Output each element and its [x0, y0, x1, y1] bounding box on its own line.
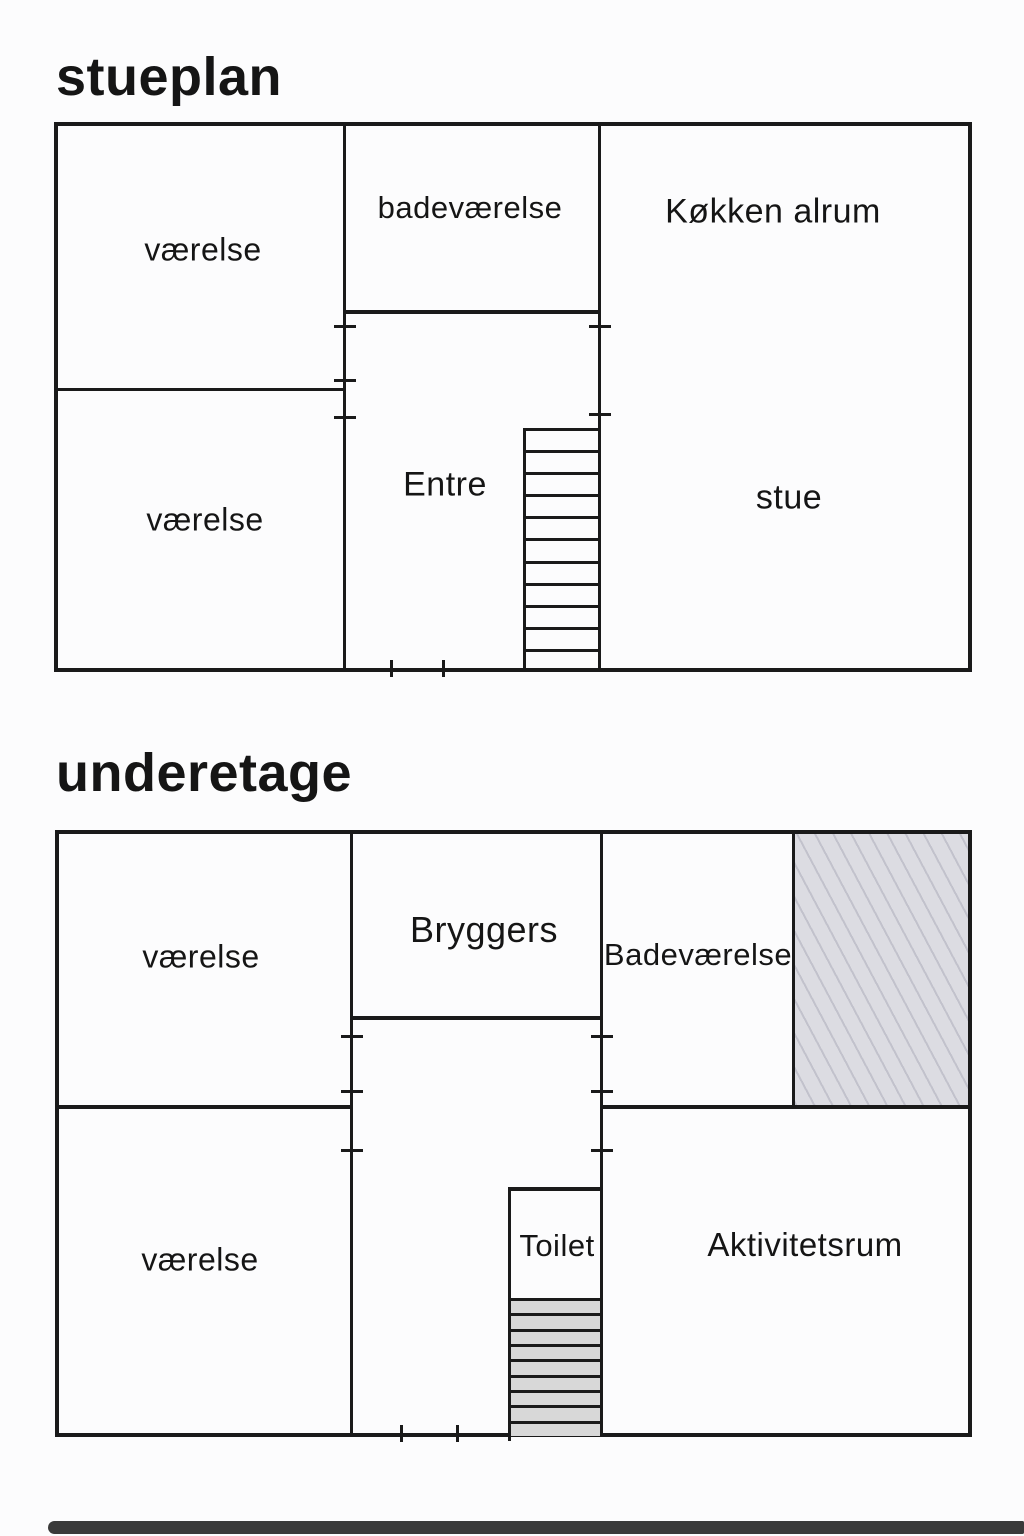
- title-stueplan: stueplan: [56, 50, 282, 104]
- wall-outer-bottom: [54, 668, 972, 672]
- wall-bathroom-bottom: [343, 310, 601, 314]
- stair-tread: [526, 475, 601, 497]
- scan-edge-artifact: [48, 1521, 1024, 1534]
- stair-tread: [511, 1332, 600, 1347]
- stair-tread: [526, 541, 601, 563]
- stair-tread: [511, 1378, 600, 1393]
- stair-tread: [511, 1408, 600, 1423]
- wall-outer-right: [968, 122, 972, 672]
- door-opening-tick: [341, 1035, 363, 1038]
- wall-rooms-corridor: [350, 830, 353, 1437]
- wall-room-divider: [55, 1105, 353, 1109]
- door-opening-tick: [589, 325, 611, 328]
- wall-room-divider: [54, 388, 346, 391]
- wall-outer-right: [968, 830, 972, 1437]
- room-label-entre: Entre: [403, 466, 487, 505]
- door-opening-tick: [334, 325, 356, 328]
- stair-tread: [526, 652, 601, 671]
- hatched-area: [792, 834, 968, 1105]
- door-opening-tick: [591, 1149, 613, 1152]
- stair-tread: [511, 1316, 600, 1331]
- door-opening-tick: [591, 1090, 613, 1093]
- stair-tread: [526, 453, 601, 475]
- wall-bryggers-bottom: [350, 1016, 603, 1020]
- stair-tread: [511, 1393, 600, 1408]
- room-label-vaerelse: værelse: [142, 939, 259, 976]
- staircase-down: [511, 1298, 600, 1436]
- room-label-toilet: Toilet: [519, 1228, 594, 1264]
- wall-badevaerelse-bottom: [600, 1105, 972, 1109]
- room-label-vaerelse: værelse: [141, 1242, 258, 1279]
- stair-tread: [511, 1301, 600, 1316]
- door-opening-tick: [400, 1425, 403, 1442]
- stair-tread: [526, 586, 601, 608]
- title-underetage: underetage: [56, 746, 352, 800]
- room-label-koekken-alrum: Køkken alrum: [665, 193, 881, 232]
- stair-tread: [526, 630, 601, 652]
- room-label-badevaerelse: badeværelse: [378, 190, 563, 226]
- wall-outer-left: [54, 122, 58, 672]
- stair-tread: [526, 497, 601, 519]
- stair-tread: [511, 1347, 600, 1362]
- room-label-vaerelse: værelse: [144, 232, 261, 269]
- stair-tread: [511, 1424, 600, 1436]
- stair-tread: [511, 1362, 600, 1377]
- room-label-badevaerelse: Badeværelse: [604, 937, 792, 973]
- door-opening-tick: [591, 1035, 613, 1038]
- stair-tread: [526, 608, 601, 630]
- wall-outer-top: [54, 122, 972, 126]
- door-opening-tick: [589, 413, 611, 416]
- door-opening-tick: [442, 660, 445, 677]
- door-opening-tick: [456, 1425, 459, 1442]
- staircase-up: [523, 428, 601, 671]
- door-opening-tick: [341, 1090, 363, 1093]
- room-label-bryggers: Bryggers: [410, 909, 558, 951]
- stair-tread: [526, 431, 601, 453]
- wall-outer-left: [55, 830, 59, 1437]
- room-label-vaerelse: værelse: [146, 502, 263, 539]
- wall-rooms-entre: [343, 122, 346, 672]
- stair-tread: [526, 519, 601, 541]
- floor-plan-underetage: værelse Bryggers Badeværelse værelse Toi…: [55, 830, 972, 1437]
- stair-tread: [526, 564, 601, 586]
- door-opening-tick: [390, 660, 393, 677]
- floor-plan-stueplan: værelse badeværelse Køkken alrum værelse…: [54, 122, 972, 672]
- door-opening-tick: [334, 416, 356, 419]
- room-label-stue: stue: [756, 479, 822, 518]
- door-opening-tick: [341, 1149, 363, 1152]
- room-label-aktivitetsrum: Aktivitetsrum: [707, 1226, 902, 1264]
- door-opening-tick: [334, 379, 356, 382]
